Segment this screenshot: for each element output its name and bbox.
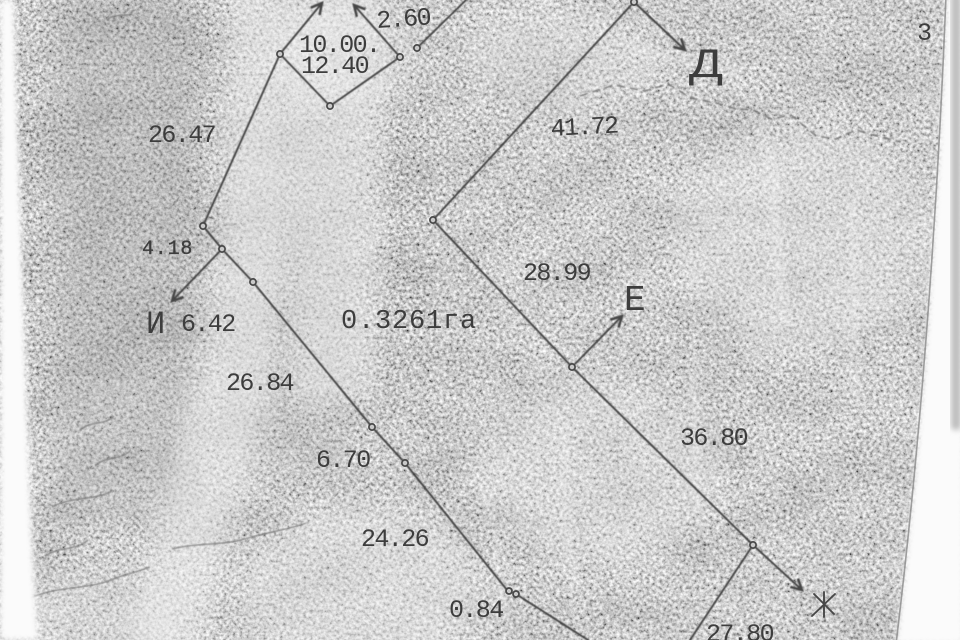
svg-text:26.47: 26.47 (148, 121, 216, 150)
svg-text:12.40: 12.40 (301, 52, 369, 81)
svg-text:2.60: 2.60 (376, 3, 432, 36)
svg-text:0.3261га: 0.3261га (341, 307, 477, 337)
svg-text:28.99: 28.99 (523, 259, 591, 288)
svg-text:24.26: 24.26 (361, 525, 429, 554)
svg-text:И: И (146, 306, 165, 343)
svg-text:6.70: 6.70 (316, 446, 370, 475)
svg-text:3: 3 (917, 19, 932, 48)
svg-text:41.72: 41.72 (550, 111, 619, 143)
svg-text:Д: Д (689, 42, 723, 90)
svg-text:36.80: 36.80 (680, 424, 748, 453)
svg-text:4.18: 4.18 (142, 238, 193, 261)
svg-text:6.42: 6.42 (181, 310, 235, 339)
svg-text:26.84: 26.84 (226, 369, 294, 398)
svg-text:0.84: 0.84 (449, 596, 503, 625)
svg-text:27.80: 27.80 (706, 620, 774, 640)
svg-text:Е: Е (624, 280, 646, 321)
